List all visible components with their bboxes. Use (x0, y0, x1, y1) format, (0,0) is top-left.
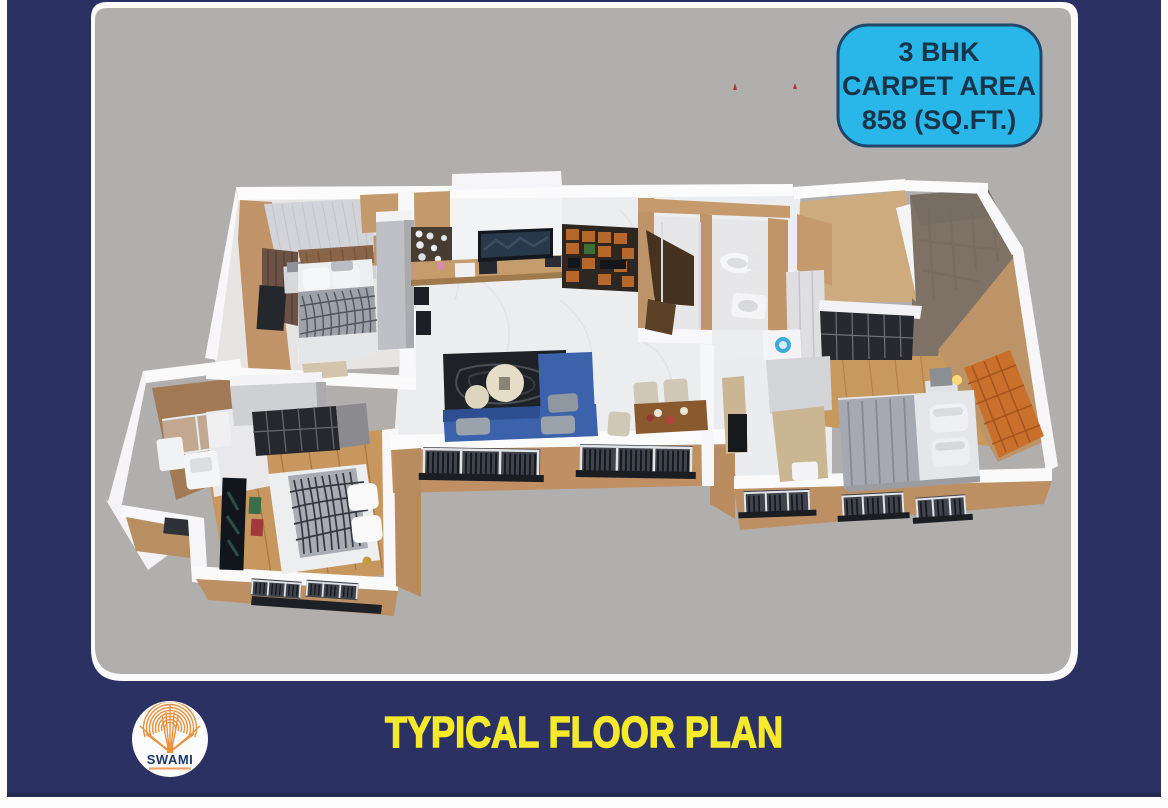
svg-text:TYPICAL FLOOR PLAN: TYPICAL FLOOR PLAN (385, 708, 783, 757)
svg-text:CARPET AREA: CARPET AREA (842, 71, 1036, 101)
svg-text:3 BHK: 3 BHK (898, 37, 980, 67)
svg-text:858 (SQ.FT.): 858 (SQ.FT.) (862, 105, 1017, 135)
svg-text:SWAMI: SWAMI (147, 752, 194, 767)
